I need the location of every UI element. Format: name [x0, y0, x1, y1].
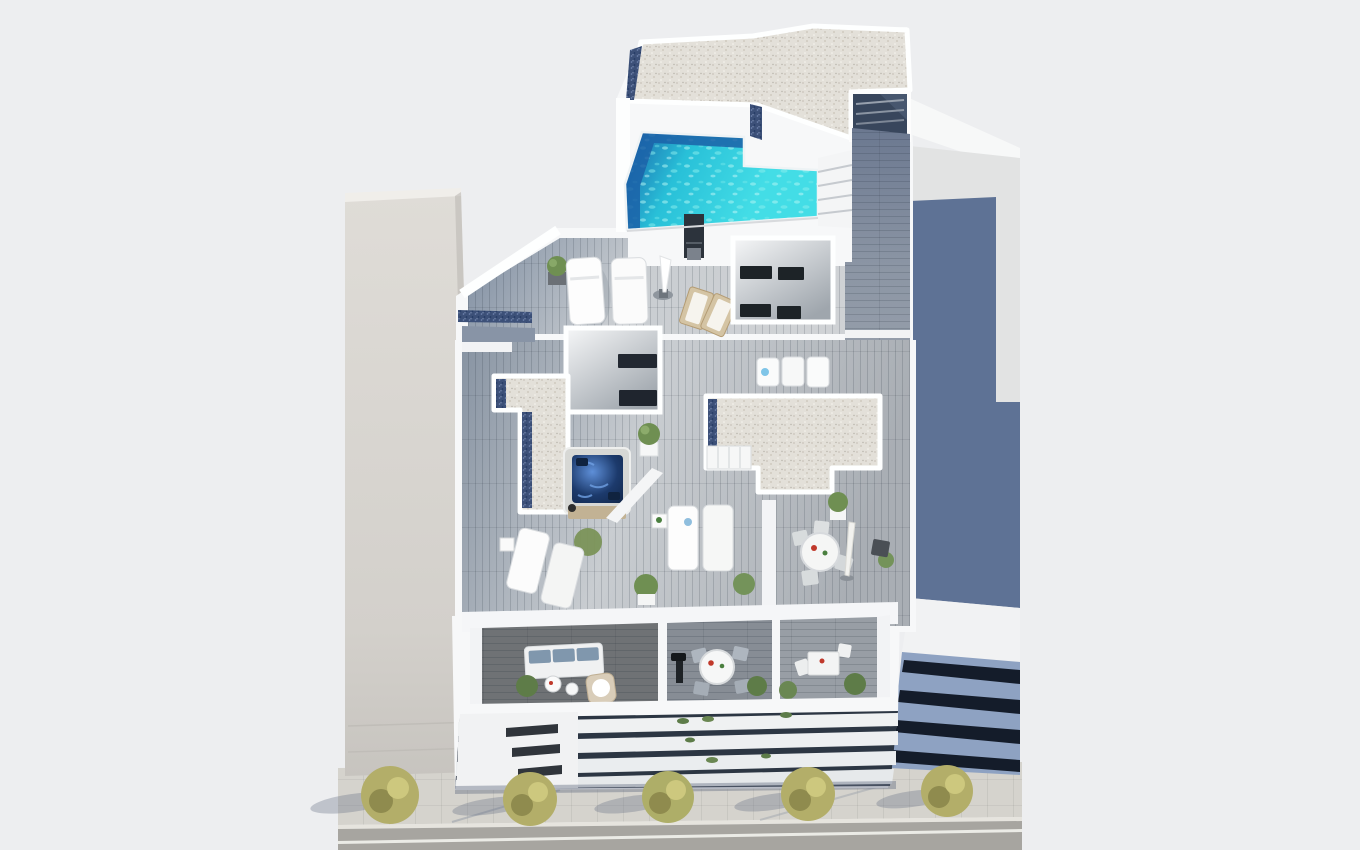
table-item-red [820, 659, 825, 664]
outdoor-sofa [524, 643, 604, 679]
small-lounger-row [757, 357, 829, 387]
plant-foliage [547, 256, 567, 276]
walkway-wall-break [845, 330, 911, 338]
balcony-west-wall [470, 628, 482, 712]
table-item-green [823, 551, 828, 556]
shower-base [687, 248, 701, 260]
table-item-red [708, 660, 714, 666]
plant-foliage [638, 423, 660, 445]
plant-highlight [641, 426, 650, 435]
stair-bulkhead [733, 238, 833, 322]
lounger-fold [615, 277, 644, 278]
architectural-render-svg [0, 0, 1360, 850]
atrium-box [566, 328, 660, 412]
plant-tuft [761, 754, 771, 759]
coffee-table [566, 683, 578, 695]
dark-chair [871, 539, 891, 558]
render-canvas [0, 0, 1360, 850]
mid-level [458, 310, 910, 626]
front-terraces [462, 602, 898, 722]
wicker-chair [585, 672, 617, 705]
plant-tuft [706, 757, 718, 763]
sun-lounger-2 [611, 257, 648, 324]
small-lounger [782, 357, 804, 386]
balcony-plant [844, 673, 866, 695]
sofa-cushion [552, 648, 575, 662]
sofa-cushion [576, 647, 599, 661]
tree-canopy-light [528, 782, 548, 802]
table-item-green [720, 664, 725, 669]
pebble-strip [522, 412, 532, 508]
mid-partition-wall [762, 500, 776, 612]
balcony-plant [779, 681, 797, 699]
pebble-strip [496, 379, 506, 408]
tree-canopy-light [945, 774, 965, 794]
balcony-divider-1 [658, 623, 667, 706]
pool-steps [818, 150, 852, 228]
plant-tuft [780, 712, 792, 718]
outdoor-shower [684, 214, 704, 260]
bulkhead-window [778, 267, 804, 280]
lounger-fold [570, 277, 599, 279]
sofa-cushion [528, 650, 551, 664]
plant-foliage [828, 492, 848, 512]
coffee-table [545, 676, 561, 692]
west-terrace-strip [462, 326, 535, 342]
lounger-cushion [566, 257, 606, 325]
jacuzzi-seat [608, 492, 620, 500]
plant-highlight [549, 259, 557, 267]
plant-tuft [677, 718, 689, 724]
balcony-plant [747, 676, 767, 696]
bush [733, 573, 755, 595]
bulkhead-window [777, 306, 801, 319]
atrium-window [619, 390, 657, 406]
round-dining-table [801, 533, 839, 571]
floor-lamp-head [671, 653, 686, 661]
jacuzzi-seat [576, 458, 588, 466]
solarium-plant [547, 256, 567, 285]
jacuzzi-cover-roll [568, 504, 576, 512]
towel [761, 368, 769, 376]
west-planter-strip [458, 310, 532, 323]
round-dining-table [700, 650, 734, 684]
table-plant [656, 517, 662, 523]
tree-canopy-light [806, 777, 826, 797]
small-lounger [807, 357, 829, 387]
bulkhead-window [740, 266, 772, 279]
table-item-red [811, 545, 817, 551]
west-wall-band [462, 342, 512, 352]
plant-tuft [702, 716, 714, 722]
side-table [500, 538, 514, 551]
steps-surface [818, 150, 852, 228]
plant-pot [638, 594, 655, 605]
plant-tuft [685, 738, 695, 743]
lounger [703, 505, 733, 571]
bulkhead-window [740, 304, 771, 317]
table-item-red [549, 681, 553, 685]
dining-chair [693, 681, 710, 696]
lounger-cushion [611, 257, 648, 324]
tree-canopy-light [387, 777, 409, 799]
balcony-plant [516, 675, 538, 697]
balcony-divider-2 [772, 620, 780, 704]
square-dining-table [808, 652, 839, 675]
towel [684, 518, 692, 526]
roof-pebble-strip-center [750, 104, 762, 140]
right-building-top-band [902, 598, 1020, 662]
lounger [668, 506, 698, 570]
tree-canopy-light [666, 780, 686, 800]
louver-doors [707, 446, 751, 469]
atrium-window [618, 354, 657, 368]
balcony-east-wall [877, 615, 890, 700]
